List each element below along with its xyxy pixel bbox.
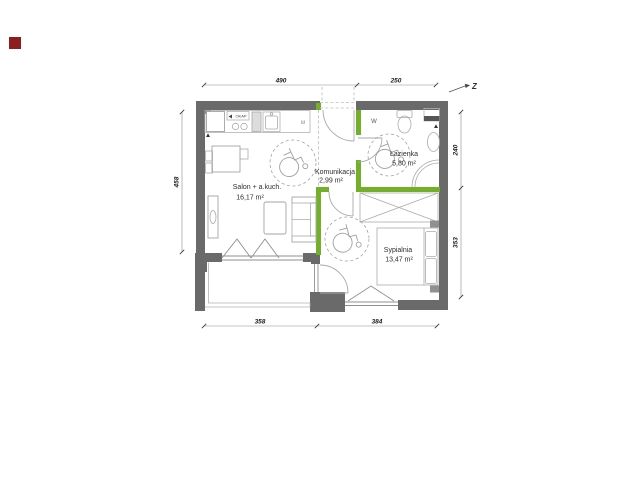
tv-cabinet (208, 196, 218, 238)
dimension-label-top-2: 250 (390, 78, 402, 85)
dimension-label-bottom-2: 384 (372, 319, 383, 326)
sofa-armrest (292, 236, 316, 242)
stove-burner-icon (232, 123, 238, 129)
fridge (207, 112, 225, 132)
wheelchair-turning-circle (325, 217, 369, 261)
north-arrow: Z (449, 82, 478, 92)
hood-arrow-icon (229, 115, 233, 119)
balcony (205, 263, 310, 308)
room-labels: Salon + a.kuch. 16,17 m² Komunikacja 2,9… (233, 151, 418, 264)
toilet-bowl-icon (398, 116, 411, 133)
wall-left (196, 101, 205, 253)
entrance-opening (320, 87, 356, 141)
nightstand (430, 286, 439, 293)
balcony-door-glazing (315, 264, 319, 292)
nightstand (430, 221, 439, 228)
sink-icon (266, 116, 278, 129)
pillow (426, 259, 437, 284)
toilet-tank-icon (397, 111, 412, 118)
room-area-salon: 16,17 m² (236, 195, 264, 202)
shaft-fill (424, 116, 440, 121)
sofa-armrest (292, 197, 316, 203)
dimension-label-left-1: 458 (174, 176, 181, 188)
green-partition-salon-bedroom (316, 187, 321, 255)
chair (206, 163, 213, 173)
washer-mark: W (371, 119, 377, 125)
green-bathroom-wall-upper (356, 110, 361, 135)
wall-corner-bottomleft (196, 253, 207, 272)
dining-table (212, 146, 240, 172)
north-label: Z (471, 82, 478, 91)
floor-plan-canvas: OKAP ш (0, 0, 640, 480)
window-casement-triangle (348, 286, 394, 301)
kitchen-annex: OKAP ш (205, 111, 310, 138)
wheelchair-turning-circle (270, 140, 316, 186)
washbasin-icon (428, 133, 440, 152)
dishwasher (252, 112, 261, 132)
room-area-komunikacja: 2,99 m² (319, 178, 343, 185)
north-arrow-head-icon (465, 84, 470, 88)
wardrobe (360, 193, 438, 222)
counter-glyph: ш (301, 120, 306, 126)
green-partition-cap (316, 187, 329, 192)
room-area-lazienka: 5,80 m² (392, 161, 416, 168)
dimension-label-right-1: 240 (453, 144, 460, 156)
room-label-sypialnia: Sypialnia (384, 247, 413, 254)
wheelchair-icon (273, 144, 309, 179)
window-salon (222, 256, 303, 260)
green-bathroom-wall-bottom (356, 187, 440, 192)
bathroom-fixtures: W (358, 109, 440, 188)
cooker-hood-label: OKAP (235, 114, 246, 119)
north-arrow-line (449, 86, 465, 92)
room-area-sypialnia: 13,47 m² (385, 257, 413, 264)
room-label-lazienka: Łazienka (390, 151, 418, 158)
shower-icon (412, 160, 439, 187)
dimension-label-top-1: 490 (275, 78, 287, 85)
entrance-door-arc (323, 110, 354, 141)
balcony-outline (209, 263, 311, 304)
sofa-back (311, 203, 317, 236)
bedroom-furniture (329, 192, 439, 293)
window-bedroom (345, 302, 398, 306)
wall-top-left (196, 101, 320, 110)
chair (206, 151, 213, 161)
wheelchair-icon (329, 222, 362, 255)
chair (240, 149, 248, 159)
brand-logo (9, 37, 21, 49)
balcony-door-arc (320, 265, 348, 293)
balcony-railing (205, 303, 310, 307)
room-label-salon: Salon + a.kuch. (233, 184, 282, 191)
green-wall-cap-top (316, 103, 321, 110)
window-casement-triangles (222, 239, 279, 258)
dimension-label-bottom-1: 358 (255, 319, 266, 326)
coffee-table (264, 202, 286, 234)
wardrobe-cross (360, 193, 438, 222)
wall-step-block (310, 292, 345, 312)
faucet-icon (270, 113, 273, 116)
room-label-komunikacja: Komunikacja (315, 169, 355, 176)
floor-plan-page: OKAP ш (0, 0, 640, 480)
bedroom-door-arc (329, 192, 353, 216)
entrance-dashed-outline (320, 87, 356, 108)
vent-marker-icon (206, 133, 210, 137)
sofa (292, 197, 316, 242)
wall-jamb (311, 260, 320, 264)
bathroom-door-arc (358, 138, 382, 162)
wall-right (439, 101, 448, 310)
vent-marker-icon (434, 124, 438, 128)
dimension-label-right-2: 353 (453, 237, 460, 248)
pillow (426, 232, 437, 257)
stove-burner-icon (241, 123, 247, 129)
